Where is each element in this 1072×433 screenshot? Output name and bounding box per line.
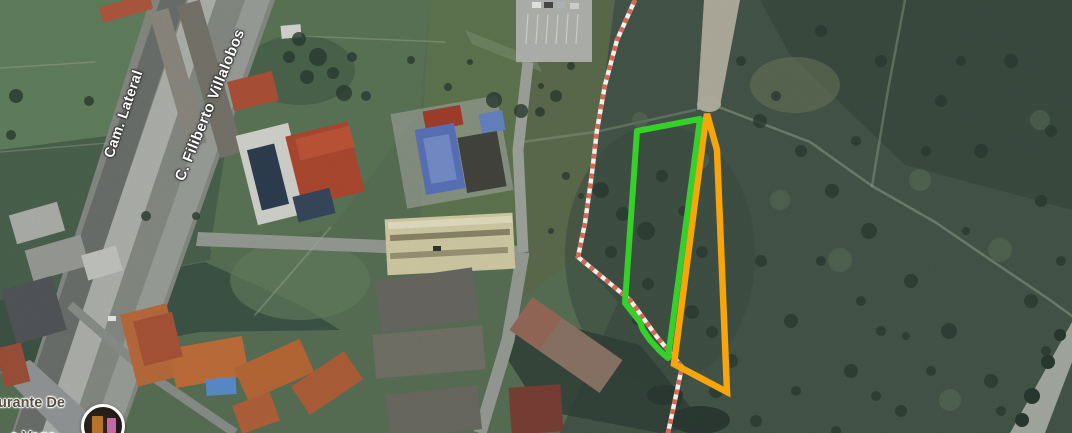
poi-photo-detail [107, 418, 116, 433]
map-viewport[interactable]: Cam. Lateral C. Filiberto Villalobos ura… [0, 0, 1072, 433]
satellite-noise-texture [0, 0, 1072, 433]
poi-label-restaurant[interactable]: urante De [0, 395, 65, 411]
poi-photo-detail [92, 416, 103, 433]
poi-label-restaurant-line2[interactable]: a Vega [10, 429, 56, 433]
satellite-canvas [0, 0, 1072, 433]
